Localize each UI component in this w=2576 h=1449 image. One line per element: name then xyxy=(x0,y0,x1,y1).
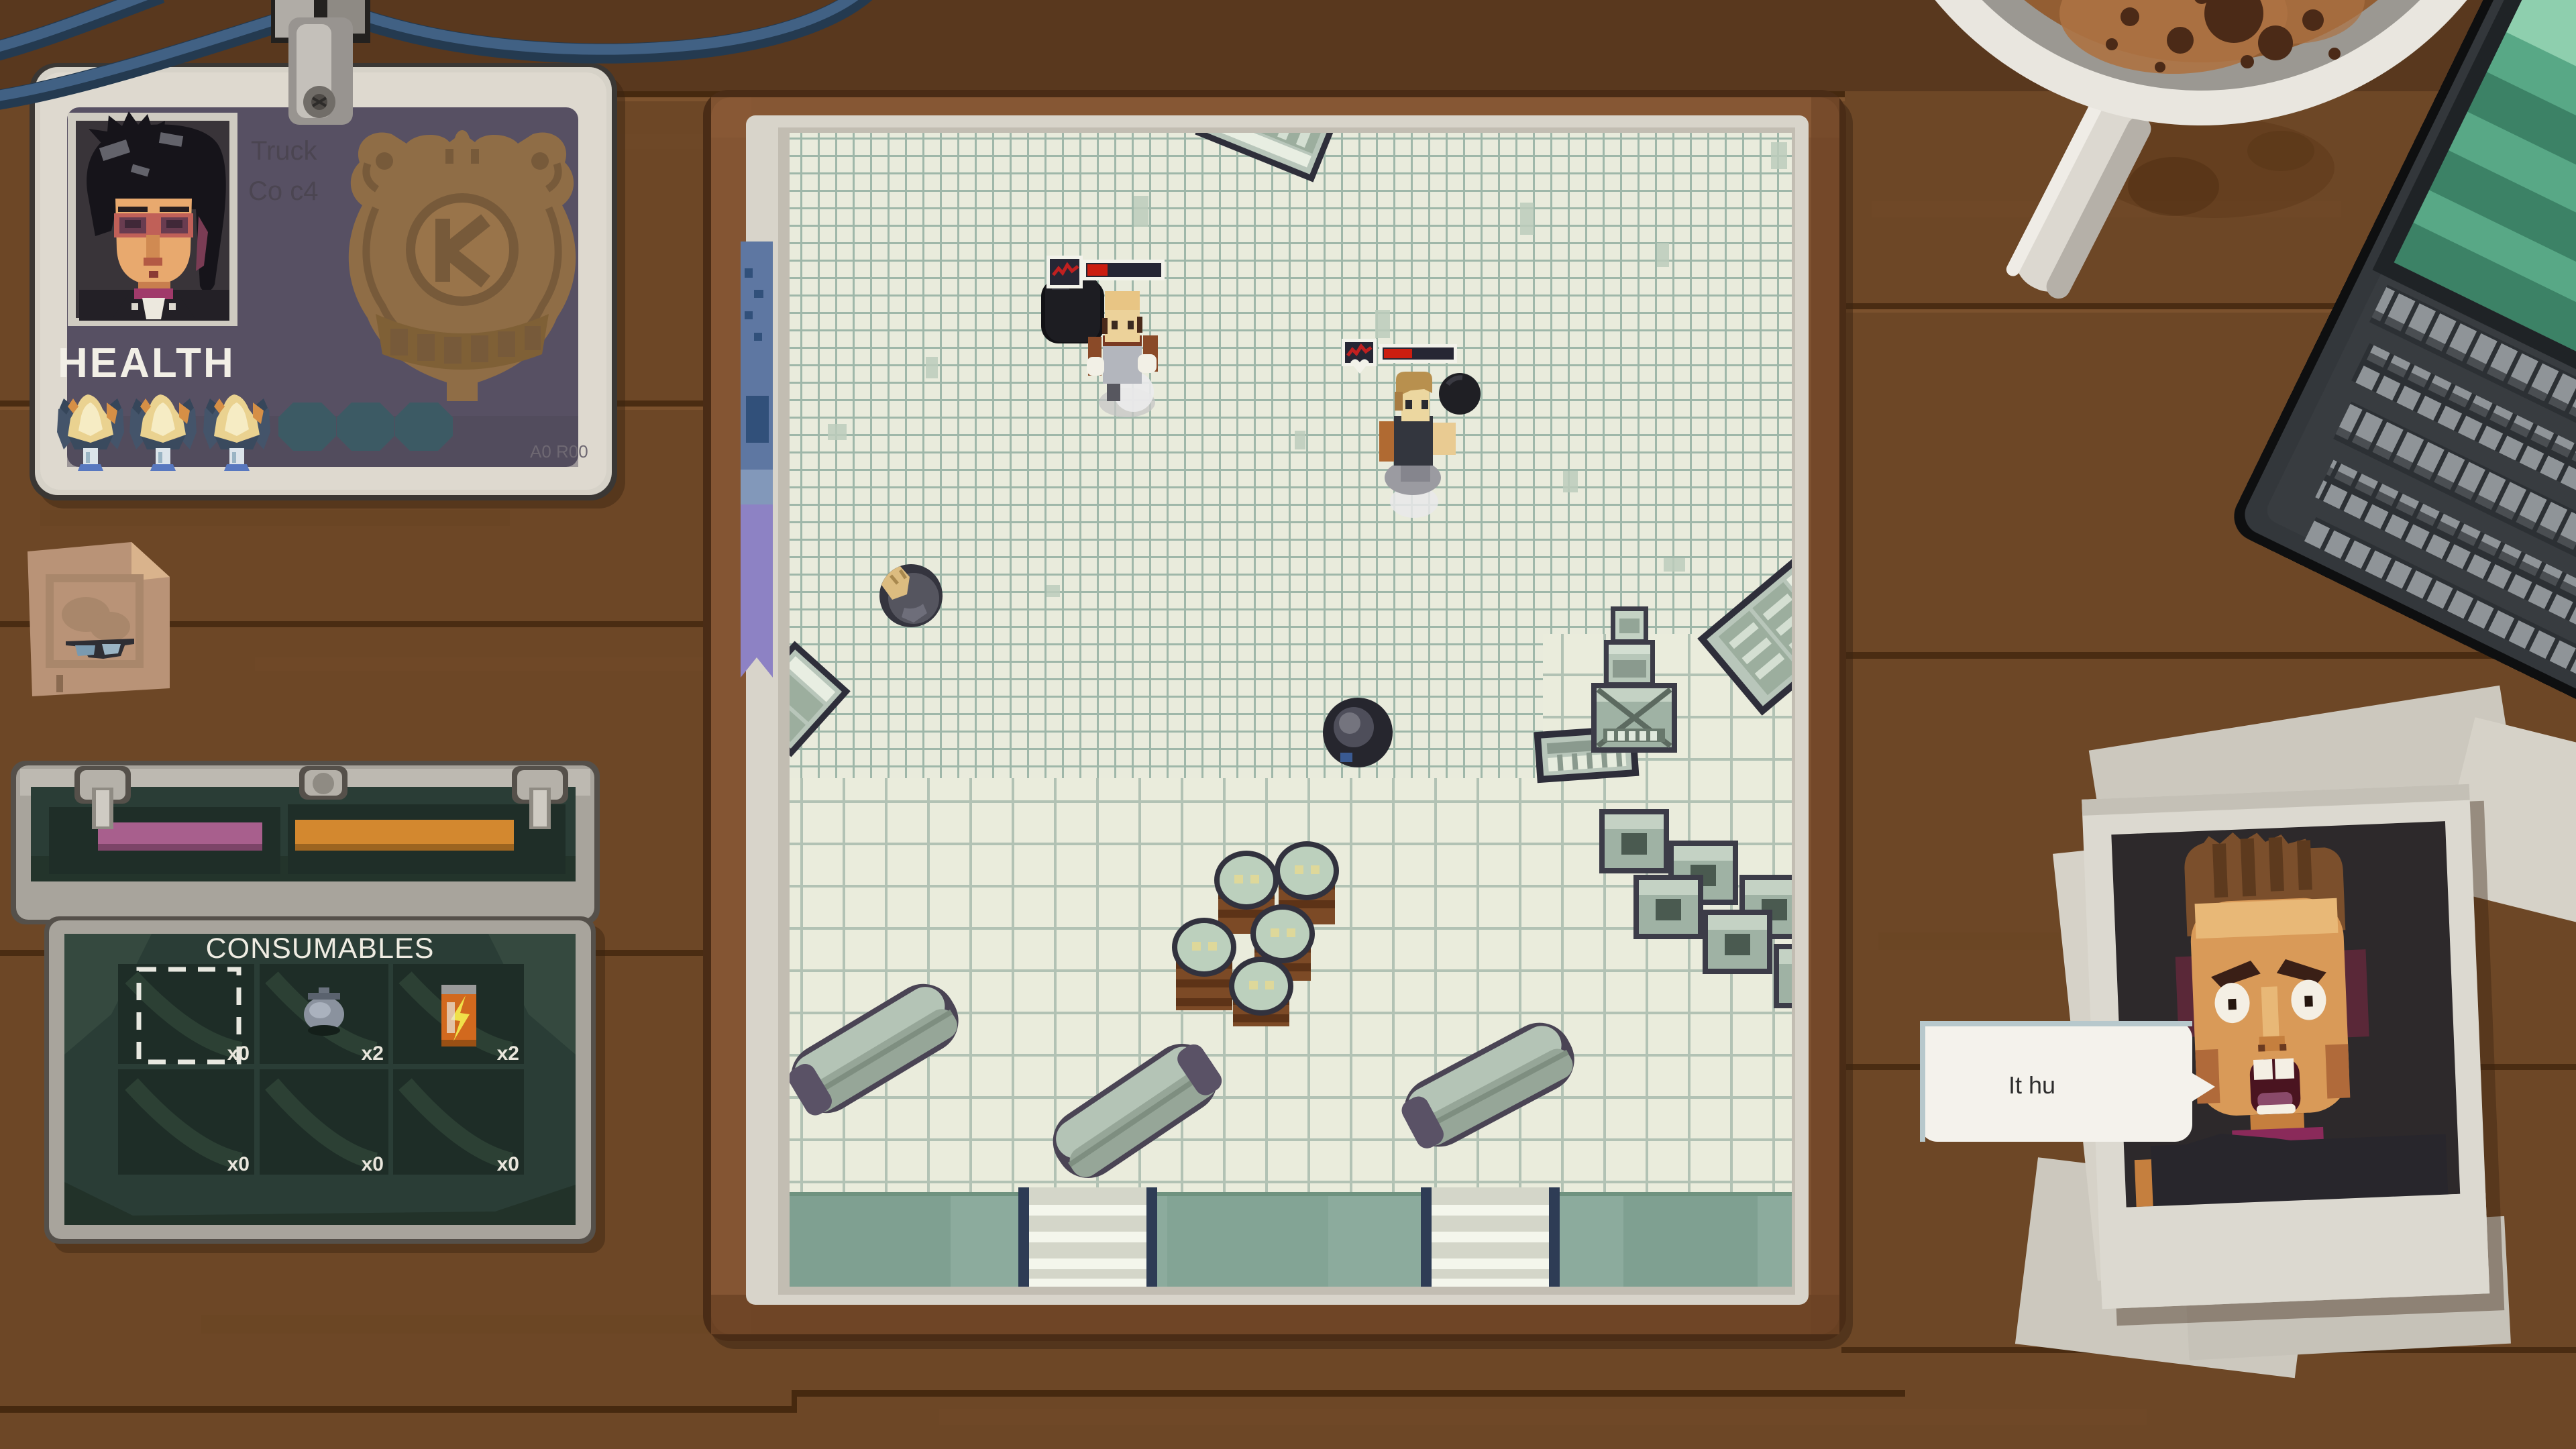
svg-text:Truck: Truck xyxy=(251,136,318,166)
svg-text:Co c4: Co c4 xyxy=(248,176,319,206)
svg-text:HEALTH: HEALTH xyxy=(58,340,235,386)
svg-text:x0: x0 xyxy=(227,1042,250,1065)
svg-text:x2: x2 xyxy=(362,1042,384,1065)
svg-text:CONSUMABLES: CONSUMABLES xyxy=(206,932,435,965)
svg-text:x2: x2 xyxy=(497,1042,519,1065)
svg-text:It hu: It hu xyxy=(2008,1071,2055,1099)
svg-text:x0: x0 xyxy=(497,1153,519,1175)
svg-text:A0 R00: A0 R00 xyxy=(530,441,588,462)
svg-text:x0: x0 xyxy=(362,1153,384,1175)
svg-text:x0: x0 xyxy=(227,1153,250,1175)
